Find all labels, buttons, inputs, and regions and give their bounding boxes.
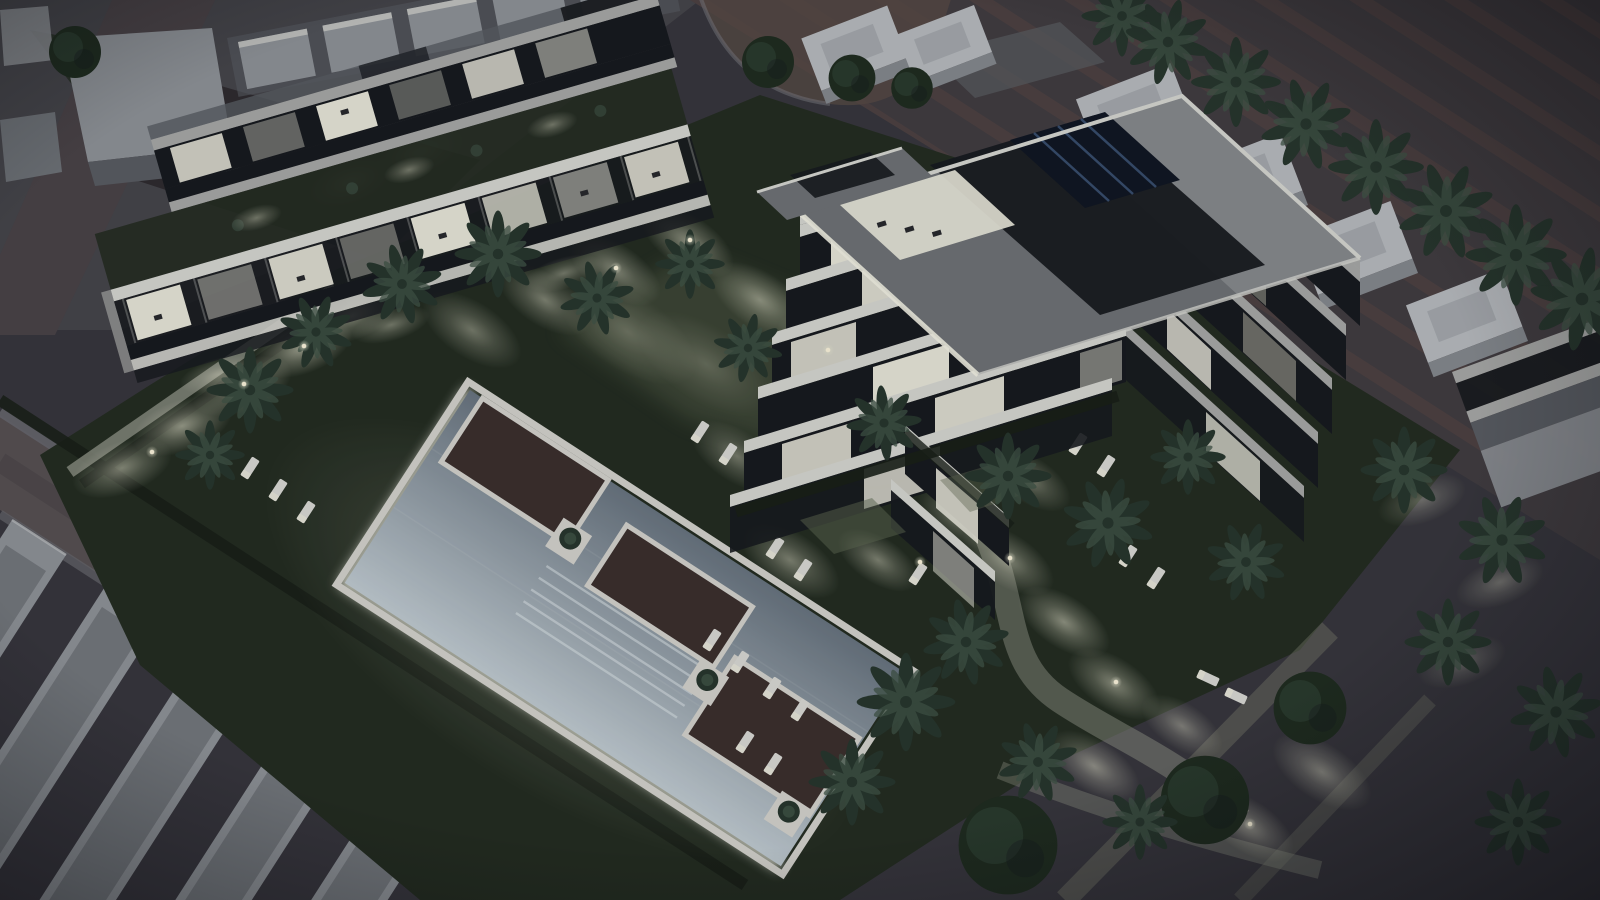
vignette <box>0 0 1600 900</box>
night-render <box>0 0 1600 900</box>
render-canvas <box>0 0 1600 900</box>
